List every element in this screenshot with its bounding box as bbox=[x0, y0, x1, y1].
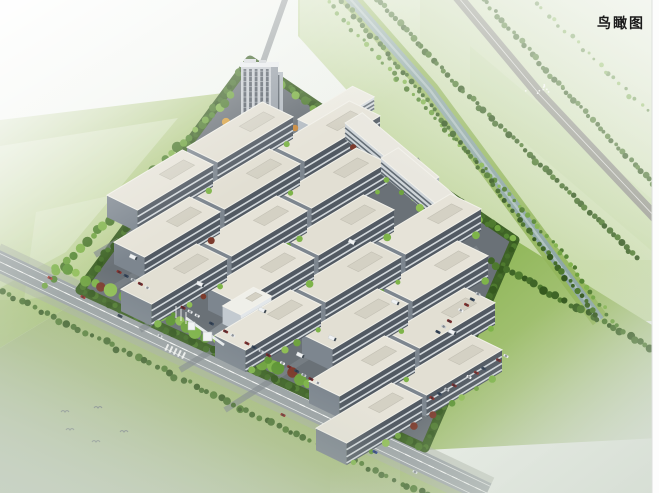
mist-overlays bbox=[0, 0, 659, 493]
aerial-rendering-page: 鸟瞰图 bbox=[0, 0, 659, 493]
aerial-view-rendering bbox=[0, 0, 659, 493]
view-label: 鸟瞰图 bbox=[597, 13, 645, 33]
page-edge bbox=[652, 0, 659, 493]
